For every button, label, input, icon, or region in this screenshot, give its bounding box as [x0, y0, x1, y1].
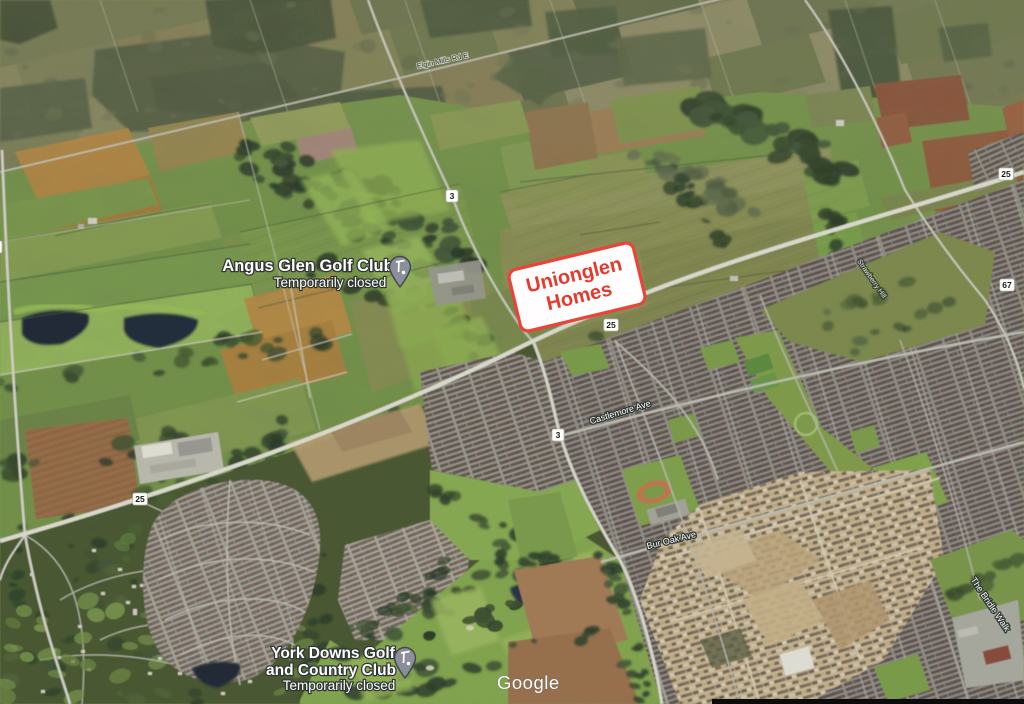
svg-text:Google: Google: [497, 672, 560, 693]
svg-text:and Country Club: and Country Club: [266, 662, 396, 679]
svg-text:York Downs Golf: York Downs Golf: [271, 645, 396, 662]
svg-text:Temporarily closed: Temporarily closed: [274, 275, 387, 290]
svg-text:3: 3: [556, 430, 561, 440]
svg-text:67: 67: [1002, 280, 1012, 290]
svg-text:Temporarily closed: Temporarily closed: [283, 678, 396, 693]
svg-text:25: 25: [135, 494, 145, 504]
svg-text:3: 3: [450, 191, 455, 201]
svg-text:Angus Glen Golf Club: Angus Glen Golf Club: [222, 257, 393, 275]
svg-text:25: 25: [606, 320, 616, 330]
svg-text:25: 25: [1001, 169, 1011, 179]
